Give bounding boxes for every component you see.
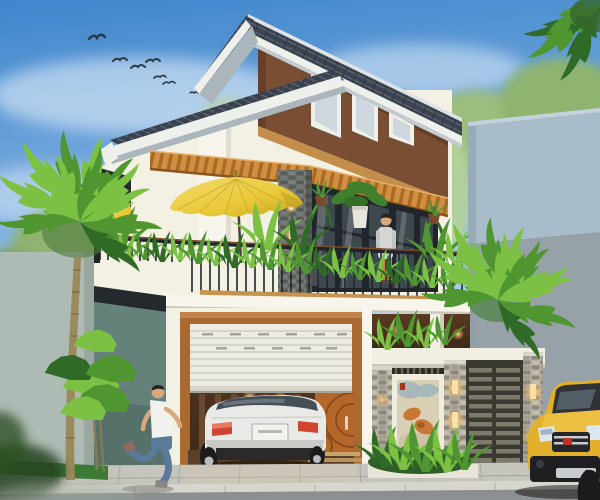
white-sedan xyxy=(200,395,329,476)
garage xyxy=(180,312,379,476)
roller-shutter xyxy=(190,324,352,393)
architectural-rendering xyxy=(0,0,600,500)
suv-grille xyxy=(552,432,590,452)
